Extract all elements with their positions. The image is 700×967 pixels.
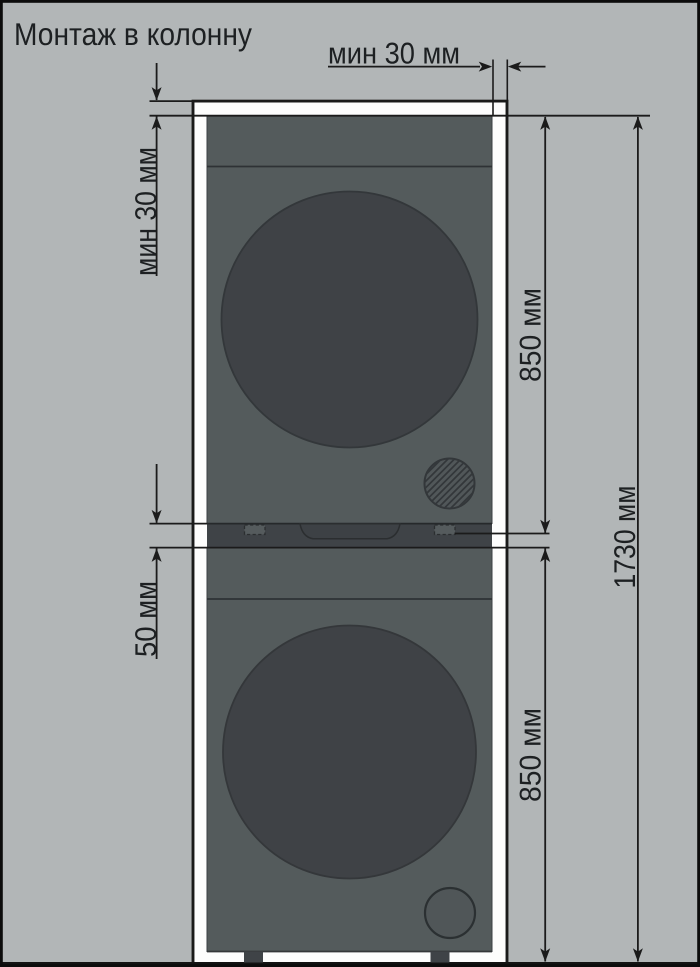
svg-text:850 мм: 850 мм	[515, 288, 548, 382]
svg-text:мин 30 мм: мин 30 мм	[328, 38, 460, 71]
svg-text:1730 мм: 1730 мм	[609, 486, 642, 589]
svg-text:50 мм: 50 мм	[130, 581, 163, 657]
svg-text:850 мм: 850 мм	[515, 708, 548, 802]
svg-text:мин 30 мм: мин 30 мм	[130, 147, 163, 276]
svg-text:Монтаж в колонну: Монтаж в колонну	[14, 16, 252, 52]
